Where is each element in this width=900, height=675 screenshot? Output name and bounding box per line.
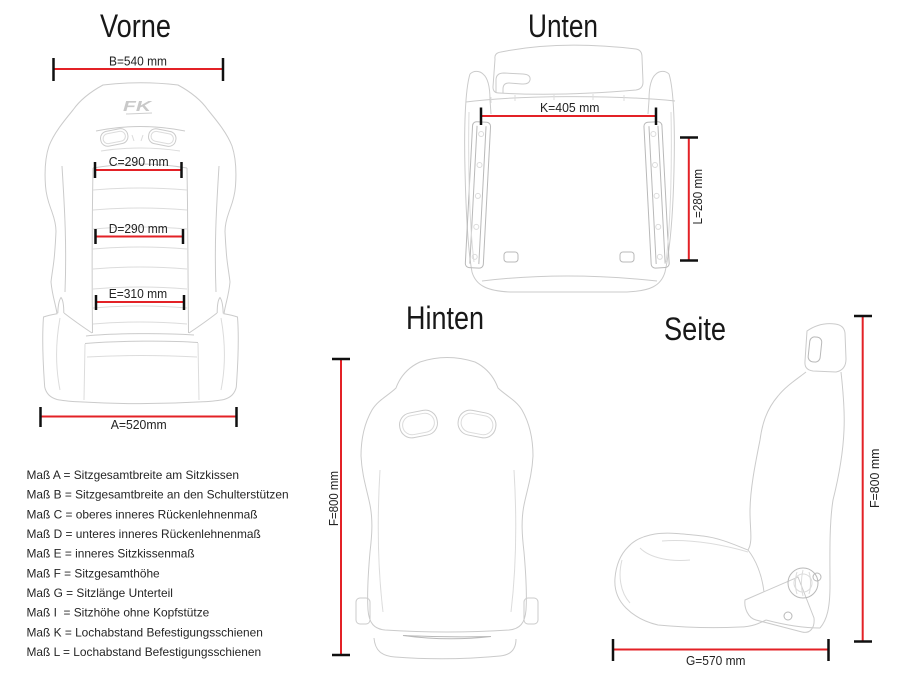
svg-text:D=290 mm: D=290 mm <box>109 222 168 236</box>
svg-text:Unten: Unten <box>528 8 598 44</box>
svg-text:Maß I = Sitzhöhe ohne Kopfstü: Maß I = Sitzhöhe ohne Kopfstütze <box>27 606 210 620</box>
svg-text:A=520mm: A=520mm <box>111 418 167 432</box>
svg-text:C=290 mm: C=290 mm <box>109 155 169 169</box>
svg-text:L=280 mm: L=280 mm <box>691 169 705 225</box>
svg-text:Maß G = Sitzlänge Unterteil: Maß G = Sitzlänge Unterteil <box>27 586 173 600</box>
svg-text:G=570 mm: G=570 mm <box>686 654 746 668</box>
svg-text:Maß A = Sitzgesamtbreite am Si: Maß A = Sitzgesamtbreite am Sitzkissen <box>27 468 239 482</box>
svg-text:F=800 mm: F=800 mm <box>868 449 882 509</box>
svg-text:Maß C = oberes inneres Rückenl: Maß C = oberes inneres Rückenlehnenmaß <box>27 507 258 521</box>
svg-text:Maß D = unteres inneres Rücken: Maß D = unteres inneres Rückenlehnenmaß <box>27 527 261 541</box>
svg-text:F=800 mm: F=800 mm <box>327 471 341 526</box>
svg-text:Maß B = Sitzgesamtbreite an de: Maß B = Sitzgesamtbreite an den Schulter… <box>27 488 289 502</box>
svg-text:Maß L = Lochabstand Befestigun: Maß L = Lochabstand Befestigungsschienen <box>27 645 262 659</box>
svg-text:Maß F = Sitzgesamthöhe: Maß F = Sitzgesamthöhe <box>27 566 161 580</box>
svg-text:B=540 mm: B=540 mm <box>109 55 167 69</box>
svg-text:Seite: Seite <box>664 311 726 347</box>
svg-text:Hinten: Hinten <box>406 300 484 336</box>
svg-text:Maß E = inneres Sitzkissenmaß: Maß E = inneres Sitzkissenmaß <box>27 547 195 561</box>
svg-text:E=310 mm: E=310 mm <box>109 287 168 301</box>
svg-text:K=405 mm: K=405 mm <box>540 101 600 115</box>
svg-text:Vorne: Vorne <box>100 8 171 44</box>
svg-text:Maß K = Lochabstand Befestigun: Maß K = Lochabstand Befestigungsschienen <box>27 625 263 639</box>
svg-text:FK: FK <box>123 98 153 115</box>
